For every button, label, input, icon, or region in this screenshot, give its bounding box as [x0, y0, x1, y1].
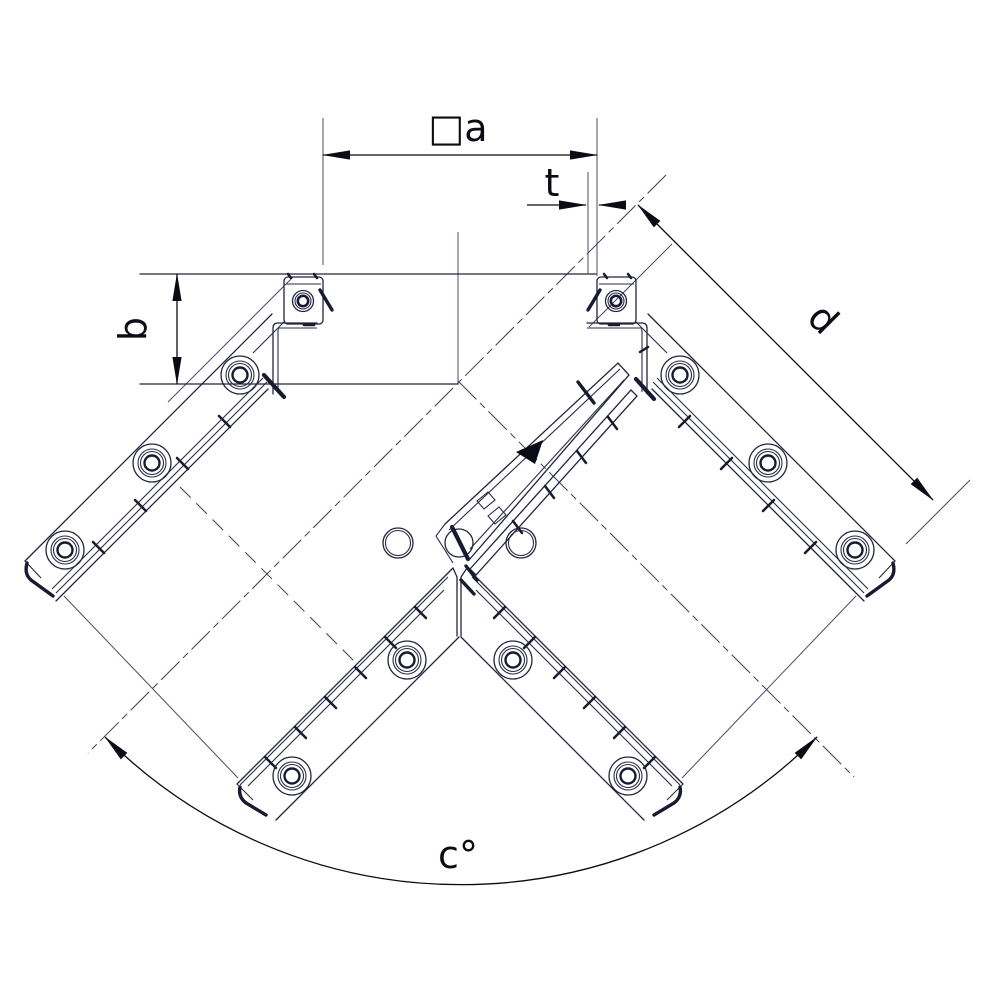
lower-v-profile [237, 568, 683, 820]
right-strap-inner [587, 328, 642, 392]
right-bracket-hole-outer [606, 291, 627, 312]
rail-tabs [477, 492, 506, 524]
left-strap-inner [278, 328, 317, 392]
hidden-miter-edge-dashed [180, 487, 356, 663]
edge-trace-right [682, 596, 856, 778]
rail-lower-inner-line [470, 380, 624, 549]
right-leg-hinge-seam [653, 378, 868, 593]
center-holes [383, 527, 536, 559]
lower-right-hinge-ticks [494, 607, 655, 768]
edge-trace-left [64, 596, 238, 778]
top-face [140, 274, 596, 384]
fold-line-right [589, 244, 672, 327]
right-leg-outer-edge2 [635, 321, 667, 353]
lower-left-washer-2 [273, 757, 311, 795]
dim-label-d: d [799, 295, 847, 343]
lower-left-washer-1 [388, 641, 426, 679]
left-leg-washer-3 [46, 531, 84, 569]
left-leg-outer-edge [25, 314, 272, 561]
dim-label-a: □a [428, 106, 487, 150]
right-leg-end-hook [867, 563, 894, 596]
right-bracket-clip-mark [588, 290, 600, 310]
construction-lines [64, 175, 856, 778]
upper-right-leg [635, 314, 895, 601]
dim-label-c: c° [438, 833, 478, 877]
dim-label-t: t [545, 161, 560, 205]
dim-d-ext-bottom [906, 480, 970, 544]
dim-label-b: b [111, 317, 155, 341]
right-bracket [587, 274, 654, 399]
left-bracket [264, 274, 332, 397]
dimension-c: c° [105, 737, 817, 885]
center-line-left-ray [88, 175, 666, 753]
lower-right-inner-edge [461, 637, 644, 820]
lower-left-hinge-ticks [265, 607, 426, 768]
lower-right-washer-1 [494, 641, 532, 679]
left-leg-end-hook [26, 563, 53, 596]
left-leg-inner-edge [56, 389, 268, 601]
rail-outline [445, 363, 629, 560]
lower-left-inner-edge [276, 637, 459, 820]
dimension-t: t [527, 161, 625, 274]
left-bracket-hole-outer [293, 291, 314, 312]
left-leg-hinge-seam [52, 378, 267, 593]
upper-left-leg [25, 314, 285, 601]
center-hole-left-inner [386, 531, 411, 556]
dimension-b: b [111, 274, 177, 384]
right-leg-washer-2 [749, 444, 787, 482]
apex-miter-seam [453, 568, 467, 636]
technical-drawing-page: □a t b d c° [0, 0, 1000, 1000]
left-leg-hinge-ticks [93, 416, 230, 553]
pivot-pin-bar [452, 527, 468, 559]
left-strap-foot [264, 375, 284, 397]
left-leg-washer-2 [133, 444, 171, 482]
lower-right-washer-2 [609, 757, 647, 795]
left-leg-outer-edge2 [253, 321, 285, 353]
left-bracket-hole-inner [298, 296, 308, 306]
right-bracket-hole-inner [611, 296, 621, 306]
center-line-right-ray [458, 381, 854, 777]
right-leg-washer-3 [836, 531, 874, 569]
right-leg-outer-edge [648, 314, 895, 561]
right-strap-foot [636, 379, 654, 399]
left-bracket-clip-mark [320, 290, 332, 310]
left-leg-washer-1 [221, 356, 259, 394]
rail-clip-mark [578, 382, 594, 403]
center-hole-left-outer [383, 528, 413, 558]
technical-drawing: □a t b d c° [0, 0, 1000, 1000]
right-leg-washer-1 [661, 356, 699, 394]
